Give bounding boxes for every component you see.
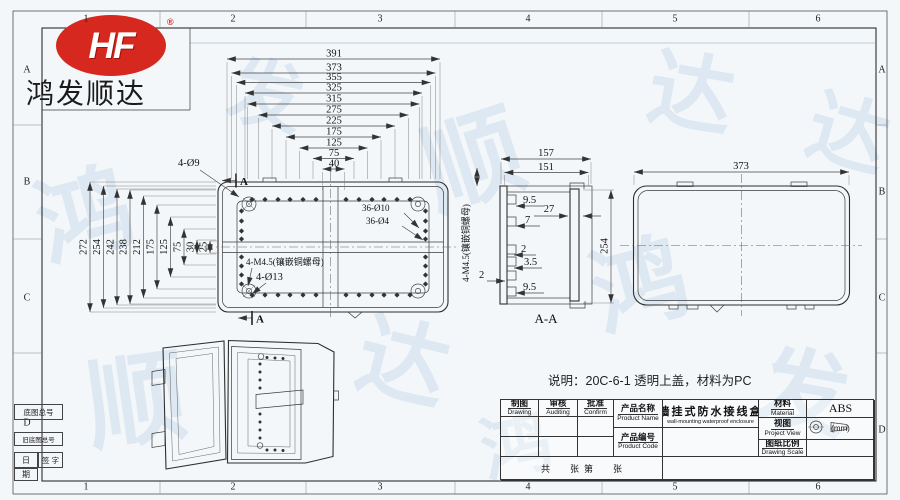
svg-text:A: A [240,176,248,188]
tb-product-name-label: 产品名称Product Name [614,400,663,428]
tb-confirm: 批准Confirm [578,400,614,417]
tb-empty [501,437,539,457]
svg-text:75: 75 [329,148,340,159]
svg-text:9.5: 9.5 [523,282,536,293]
tb-view-label: 视图Project View [759,418,807,440]
front-top-dim-chain: 391 373 355 325 315 275 225 175 125 75 [227,49,440,191]
tb-material-value: ABS [807,400,875,418]
svg-text:75: 75 [173,242,184,253]
svg-text:2: 2 [479,270,484,281]
base-drawing-no-box: 底图总号 [14,404,63,420]
svg-text:272: 272 [79,239,90,255]
zone-left-b: B [24,177,31,188]
zone-bottom-6: 6 [816,482,821,493]
tb-product-code-label: 产品编号Product Code [614,428,663,457]
zone-top-2: 2 [231,14,236,25]
zone-left-a: A [23,65,30,76]
svg-text:254: 254 [600,237,611,254]
zone-right-d: D [878,425,885,436]
tb-product-code-value [663,428,759,457]
svg-text:325: 325 [326,83,342,94]
drawing-note: 说明：20C-6-1 透明上盖，材料为PC [548,370,752,389]
zone-right-b: B [879,187,886,198]
tb-view-value: (mm) [807,418,875,440]
company-logo: HF [56,15,166,76]
svg-text:157: 157 [538,148,554,159]
wall-bumps [507,192,570,298]
section-view-aa: 157 151 27 9.5 7 2 3.5 2 9.5 4-M4.5(镶嵌铜螺… [460,148,614,326]
svg-text:391: 391 [326,49,342,60]
tb-product-name-value: 墙挂式防水接线盒wall-mounting waterproof enclosu… [663,400,759,428]
tb-drawing: 制图Drawing [501,400,539,417]
svg-text:125: 125 [326,138,342,149]
tb-sheet-count: 共 张 第 张 [501,457,663,481]
lid-view: 373 [620,161,862,316]
callout-insert-nut: 4-M4.5(镶嵌铜螺母) [246,256,324,267]
zone-right-c: C [879,293,886,304]
zone-left-c: C [24,293,31,304]
tb-auditing: 审核Auditing [539,400,578,417]
svg-text:175: 175 [326,127,342,138]
zone-top-4: 4 [526,14,531,25]
svg-text:9.5: 9.5 [523,195,536,206]
tb-empty [578,417,614,437]
callout-4xd13: 4-Ø13 [256,272,283,283]
projection-symbol-icon [807,418,851,436]
tb-material-label: 材料Material [759,400,807,418]
side-insert-label: 4-M4.5(镶嵌铜螺母) [460,204,471,282]
svg-text:151: 151 [538,162,554,173]
zone-bottom-2: 2 [231,482,236,493]
svg-text:27: 27 [544,204,555,215]
title-block: 制图Drawing 审核Auditing 批准Confirm 产品名称Produ… [500,399,874,480]
date-label-top: 日 [14,452,38,468]
svg-text:3.5: 3.5 [524,257,537,268]
drawing-sheet: 鸿 发 顺 达 顺 达 鸿 发 达 鸿 [0,0,900,500]
zone-top-3: 3 [378,14,383,25]
svg-text:373: 373 [733,161,749,172]
svg-text:40: 40 [329,159,340,170]
svg-text:238: 238 [119,239,130,255]
svg-text:355: 355 [326,72,342,83]
tb-empty [578,437,614,457]
old-base-drawing-no-box: 旧底图总号 [14,432,63,446]
zone-bottom-4: 4 [526,482,531,493]
tb-scale-label: 图纸比例Drawing Scale [759,440,807,457]
callout-36xd10: 36-Ø10 [362,203,390,213]
zone-bottom-3: 3 [378,482,383,493]
tb-empty [539,417,578,437]
svg-text:225: 225 [326,116,342,127]
zone-top-6: 6 [816,14,821,25]
zone-bottom-1: 1 [84,482,89,493]
iso-corner-screws [257,354,264,449]
svg-text:30: 30 [186,242,197,253]
svg-text:7: 7 [525,215,530,226]
svg-text:315: 315 [326,94,342,105]
svg-text:25: 25 [199,242,210,253]
zone-top-1: 1 [84,14,89,25]
svg-text:A: A [256,314,264,326]
svg-text:242: 242 [106,239,117,255]
zone-right-a: A [878,65,885,76]
callout-4xd9: 4-Ø9 [178,158,200,169]
svg-text:275: 275 [326,105,342,116]
zone-top-5: 5 [673,14,678,25]
logo-text: HF [88,25,133,67]
iso-holes [259,356,285,452]
zone-bottom-5: 5 [673,482,678,493]
svg-text:254: 254 [92,238,103,255]
company-name: 鸿发顺达 [26,72,146,112]
front-left-dim-chain: 272 254 242 238 212 175 125 75 30 25 [79,182,220,312]
tb-empty [663,457,875,481]
date-label-bottom: 期 [14,468,38,481]
tb-scale-value [807,440,875,457]
svg-text:125: 125 [159,239,170,255]
tb-empty [539,437,578,457]
svg-text:212: 212 [132,239,143,255]
tb-empty [501,417,539,437]
callout-36xd4: 36-Ø4 [366,216,389,226]
signature-box: 签 字 [38,452,63,468]
isometric-view [152,341,339,470]
svg-text:2: 2 [521,244,526,255]
section-mark-top: A [222,174,248,189]
section-mark-bottom: A [238,311,264,326]
section-title: A-A [534,311,558,326]
svg-text:175: 175 [146,239,157,255]
registered-mark-icon: ® [167,17,174,27]
